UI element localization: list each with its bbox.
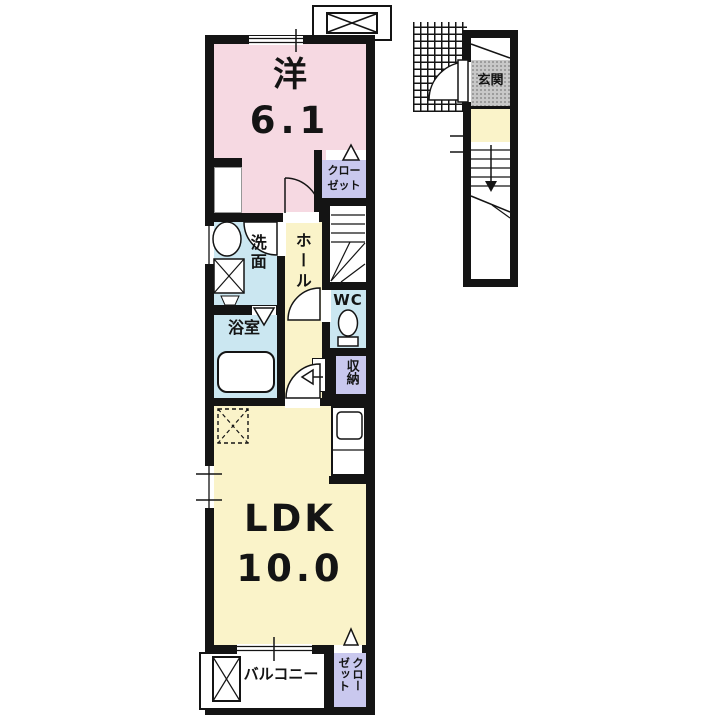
bath-label: 浴室 <box>214 320 274 337</box>
door-bedroom-icon <box>283 178 320 223</box>
ldk-area: 10.0 <box>214 550 366 589</box>
hall-label: ホール <box>293 232 310 328</box>
balcony-label: バルコニー <box>238 667 324 683</box>
entrance-door-icon <box>429 60 471 102</box>
door-bedroom-closet-icon <box>343 145 359 160</box>
washbasin-icon <box>213 222 241 256</box>
washing-machine-icon <box>214 259 244 305</box>
kitchen-sink-icon <box>333 412 364 450</box>
balcony-equipment-icon <box>213 657 240 701</box>
annex-diagonal-line <box>471 44 510 58</box>
window-top-icon <box>249 29 303 52</box>
main-stairs-icon <box>331 215 365 282</box>
bedroom-closet-label: クローゼット <box>324 164 364 194</box>
ldk-label: LDK <box>214 500 366 539</box>
western-room-area: 6.1 <box>214 102 366 141</box>
ldk-closet-label: クローゼット <box>337 657 364 699</box>
window-washroom-icon <box>204 226 214 264</box>
wc-label: WC <box>330 293 366 309</box>
door-ldk-icon <box>285 364 323 408</box>
service-box-x-icon <box>328 14 376 32</box>
window-bottom-icon <box>237 637 312 661</box>
floor-plan: 洋 6.1 クローゼット 洗面 ホール WC 浴室 収納 LDK 10.0 バル… <box>0 0 720 720</box>
storage-label: 収納 <box>344 359 358 393</box>
western-room-label: 洋 <box>214 58 366 94</box>
entrance-label: 玄関 <box>471 74 510 88</box>
door-ldk-closet-icon <box>344 629 358 645</box>
washroom-label: 洗面 <box>248 234 265 306</box>
annex-stairs-icon <box>471 145 510 218</box>
refrigerator-space-icon <box>218 409 248 443</box>
toilet-icon <box>338 310 358 346</box>
porch-railing-icon <box>450 136 463 152</box>
bathtub-icon <box>218 352 274 392</box>
